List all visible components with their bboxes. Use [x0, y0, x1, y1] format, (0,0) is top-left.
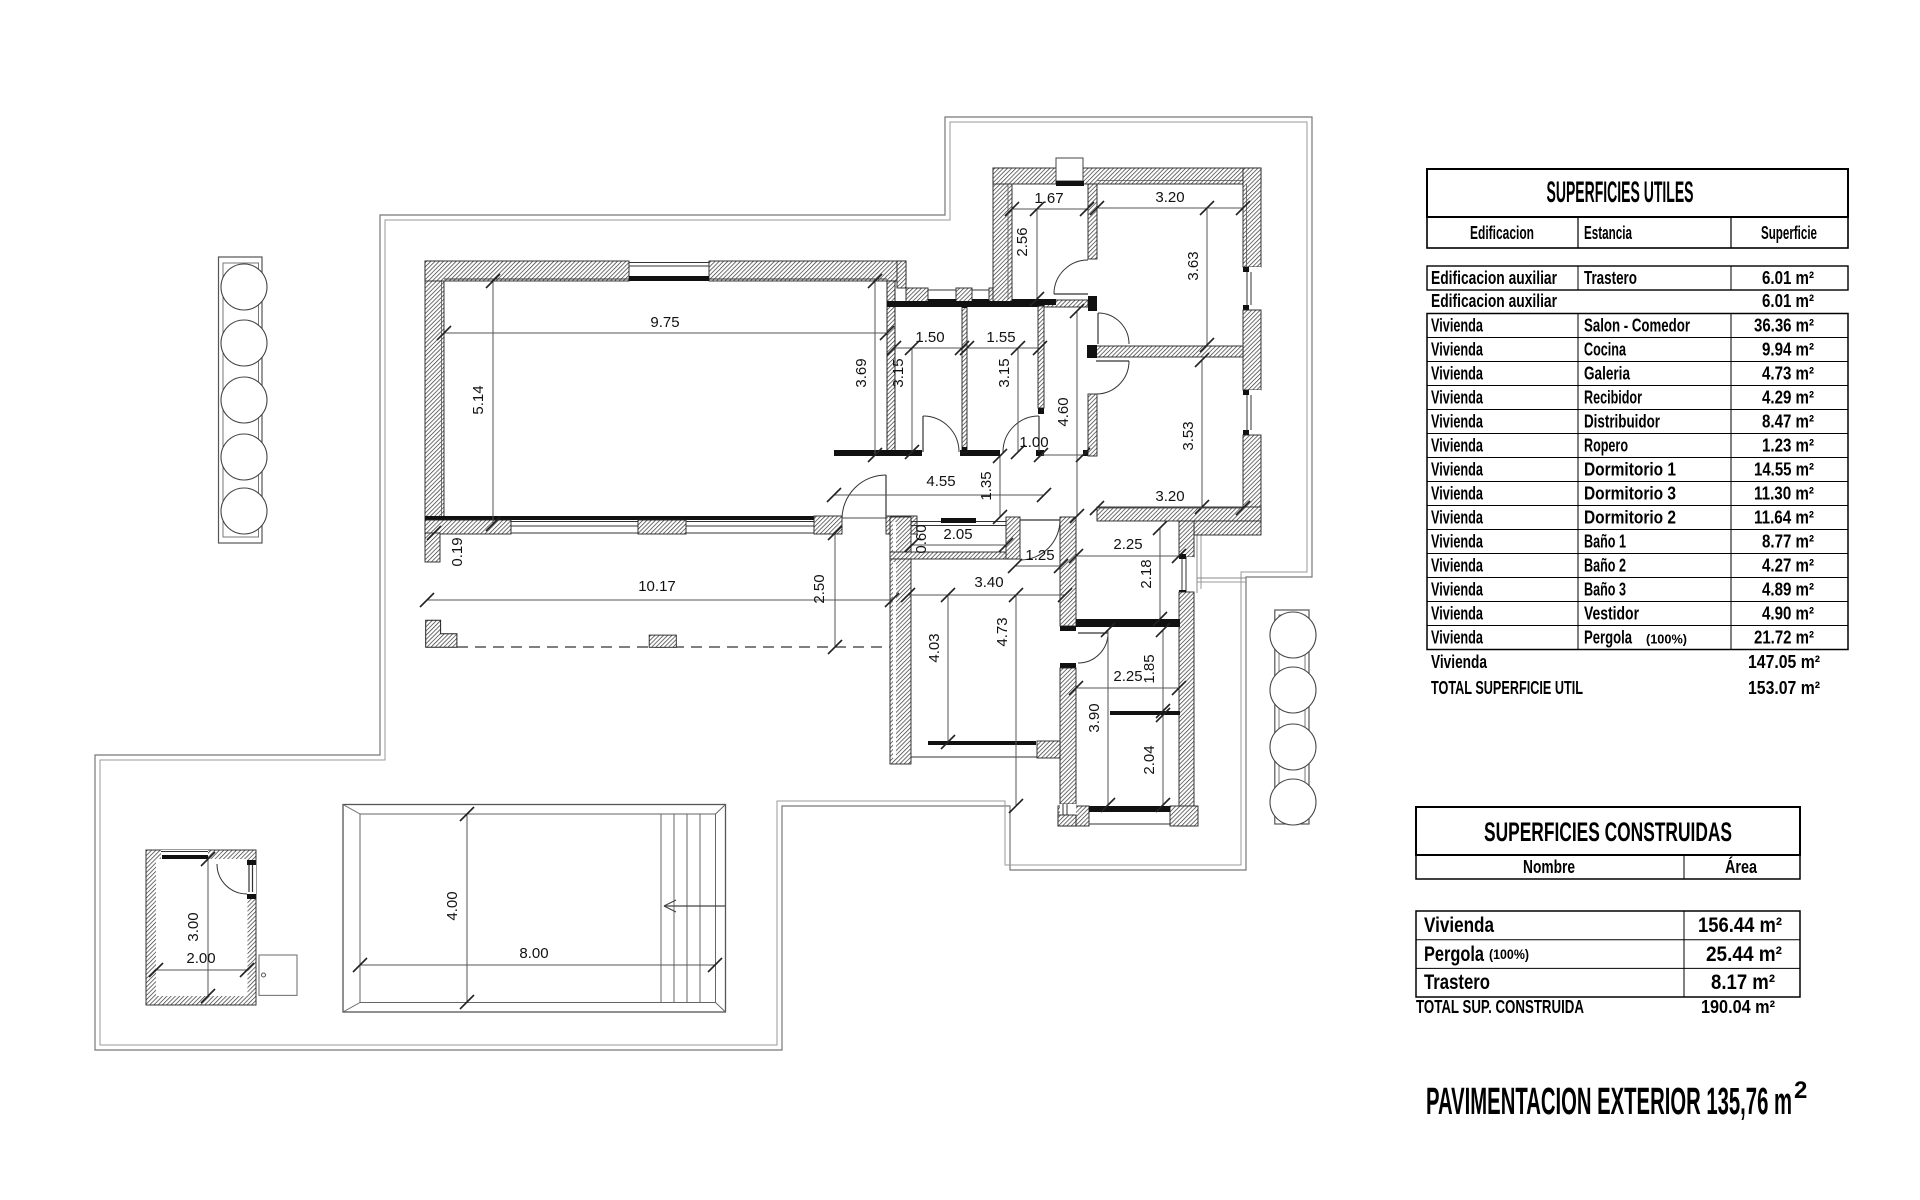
svg-text:Baño 2: Baño 2: [1584, 556, 1626, 576]
svg-text:11.30 m²: 11.30 m²: [1754, 484, 1814, 504]
svg-text:9.94 m²: 9.94 m²: [1762, 340, 1814, 360]
svg-text:25.44 m²: 25.44 m²: [1706, 943, 1782, 966]
svg-text:Estancia: Estancia: [1584, 223, 1633, 243]
svg-text:8.00: 8.00: [519, 945, 548, 962]
svg-text:3.20: 3.20: [1155, 488, 1184, 505]
svg-text:Distribuidor: Distribuidor: [1584, 412, 1660, 432]
svg-text:Vivienda: Vivienda: [1431, 532, 1484, 552]
svg-text:PAVIMENTACION EXTERIOR 135,76: PAVIMENTACION EXTERIOR 135,76 m: [1426, 1081, 1792, 1123]
svg-text:Dormitorio 3: Dormitorio 3: [1584, 484, 1676, 504]
svg-text:SUPERFICIES UTILES: SUPERFICIES UTILES: [1547, 176, 1694, 209]
svg-text:2.18: 2.18: [1138, 559, 1155, 588]
svg-text:1.85: 1.85: [1141, 654, 1158, 683]
svg-text:Vivienda: Vivienda: [1431, 388, 1484, 408]
svg-text:Vivienda: Vivienda: [1431, 460, 1484, 480]
svg-text:147.05 m²: 147.05 m²: [1748, 652, 1820, 672]
svg-text:2.25: 2.25: [1113, 536, 1142, 553]
svg-text:2.05: 2.05: [943, 526, 972, 543]
svg-text:4.27 m²: 4.27 m²: [1762, 556, 1814, 576]
svg-text:Edificacion auxiliar: Edificacion auxiliar: [1431, 268, 1557, 288]
svg-text:Vivienda: Vivienda: [1431, 556, 1484, 576]
svg-text:Área: Área: [1725, 856, 1758, 877]
svg-text:3.15: 3.15: [890, 358, 907, 387]
svg-text:14.55 m²: 14.55 m²: [1754, 460, 1814, 480]
svg-text:Vivienda: Vivienda: [1431, 652, 1488, 672]
svg-text:Edificacion: Edificacion: [1470, 223, 1534, 243]
svg-text:4.60: 4.60: [1055, 397, 1072, 426]
svg-text:0.19: 0.19: [449, 537, 466, 566]
svg-text:Vivienda: Vivienda: [1431, 604, 1484, 624]
svg-text:(100%): (100%): [1646, 632, 1687, 647]
svg-text:3.69: 3.69: [853, 358, 870, 387]
svg-text:4.73 m²: 4.73 m²: [1762, 364, 1814, 384]
svg-text:6.01 m²: 6.01 m²: [1762, 268, 1814, 288]
svg-text:Baño 3: Baño 3: [1584, 580, 1626, 600]
svg-text:4.89 m²: 4.89 m²: [1762, 580, 1814, 600]
svg-text:Vivienda: Vivienda: [1424, 914, 1494, 937]
svg-text:4.90 m²: 4.90 m²: [1762, 604, 1814, 624]
svg-text:Superficie: Superficie: [1761, 223, 1817, 243]
svg-text:4.55: 4.55: [926, 473, 955, 490]
svg-text:1.35: 1.35: [978, 471, 995, 500]
svg-text:3.15: 3.15: [996, 358, 1013, 387]
svg-text:Recibidor: Recibidor: [1584, 388, 1642, 408]
svg-text:3.40: 3.40: [974, 574, 1003, 591]
svg-text:10.17: 10.17: [638, 578, 676, 595]
svg-text:Dormitorio 2: Dormitorio 2: [1584, 508, 1676, 528]
svg-text:Dormitorio 1: Dormitorio 1: [1584, 460, 1676, 480]
svg-text:156.44 m²: 156.44 m²: [1698, 914, 1782, 937]
svg-text:Trastero: Trastero: [1584, 268, 1637, 288]
svg-text:3.63: 3.63: [1185, 251, 1202, 280]
svg-text:Vivienda: Vivienda: [1431, 508, 1484, 528]
svg-text:2.00: 2.00: [186, 950, 215, 967]
svg-text:0.60: 0.60: [913, 524, 930, 553]
svg-text:TOTAL SUP. CONSTRUIDA: TOTAL SUP. CONSTRUIDA: [1416, 997, 1584, 1017]
svg-text:Vivienda: Vivienda: [1431, 316, 1484, 336]
svg-text:Baño 1: Baño 1: [1584, 532, 1626, 552]
svg-text:Galeria: Galeria: [1584, 364, 1631, 384]
svg-text:Nombre: Nombre: [1523, 857, 1575, 877]
svg-text:1.67: 1.67: [1034, 190, 1063, 207]
svg-text:2.04: 2.04: [1141, 745, 1158, 774]
svg-text:5.14: 5.14: [470, 385, 487, 414]
svg-text:Pergola: Pergola: [1584, 628, 1633, 648]
svg-text:1.50: 1.50: [915, 329, 944, 346]
svg-text:2: 2: [1794, 1077, 1807, 1104]
svg-text:3.00: 3.00: [185, 912, 202, 941]
svg-text:1.25: 1.25: [1025, 547, 1054, 564]
svg-text:Vivienda: Vivienda: [1431, 628, 1484, 648]
svg-text:Trastero: Trastero: [1424, 971, 1490, 994]
svg-text:190.04 m²: 190.04 m²: [1701, 997, 1775, 1017]
svg-text:TOTAL SUPERFICIE UTIL: TOTAL SUPERFICIE UTIL: [1431, 678, 1583, 698]
svg-text:(100%): (100%): [1489, 946, 1529, 962]
svg-text:8.17 m²: 8.17 m²: [1711, 971, 1775, 994]
svg-text:Vivienda: Vivienda: [1431, 580, 1484, 600]
svg-text:Vivienda: Vivienda: [1431, 412, 1484, 432]
svg-text:6.01 m²: 6.01 m²: [1762, 291, 1814, 311]
svg-text:Vivienda: Vivienda: [1431, 364, 1484, 384]
svg-text:2.50: 2.50: [811, 574, 828, 603]
svg-text:2.56: 2.56: [1014, 227, 1031, 256]
svg-text:Ropero: Ropero: [1584, 436, 1628, 456]
svg-text:SUPERFICIES CONSTRUIDAS: SUPERFICIES CONSTRUIDAS: [1484, 817, 1732, 847]
svg-text:3.20: 3.20: [1155, 189, 1184, 206]
svg-text:Edificacion auxiliar: Edificacion auxiliar: [1431, 291, 1557, 311]
svg-text:8.77 m²: 8.77 m²: [1762, 532, 1814, 552]
svg-text:153.07 m²: 153.07 m²: [1748, 678, 1820, 698]
svg-text:Vivienda: Vivienda: [1431, 436, 1484, 456]
svg-text:Pergola: Pergola: [1424, 943, 1484, 966]
svg-text:Cocina: Cocina: [1584, 340, 1627, 360]
svg-text:21.72 m²: 21.72 m²: [1754, 628, 1814, 648]
svg-text:3.53: 3.53: [1180, 421, 1197, 450]
svg-text:Vivienda: Vivienda: [1431, 340, 1484, 360]
svg-text:4.29 m²: 4.29 m²: [1762, 388, 1814, 408]
svg-text:1.23 m²: 1.23 m²: [1762, 436, 1814, 456]
svg-text:2.25: 2.25: [1113, 668, 1142, 685]
svg-text:Vivienda: Vivienda: [1431, 484, 1484, 504]
svg-text:1.00: 1.00: [1019, 434, 1048, 451]
svg-text:Salon - Comedor: Salon - Comedor: [1584, 316, 1690, 336]
svg-text:9.75: 9.75: [650, 314, 679, 331]
svg-text:4.03: 4.03: [926, 633, 943, 662]
svg-text:36.36 m²: 36.36 m²: [1754, 316, 1814, 336]
svg-text:1.55: 1.55: [986, 329, 1015, 346]
svg-text:11.64 m²: 11.64 m²: [1754, 508, 1814, 528]
svg-text:4.00: 4.00: [444, 891, 461, 920]
svg-text:4.73: 4.73: [994, 617, 1011, 646]
svg-text:8.47 m²: 8.47 m²: [1762, 412, 1814, 432]
svg-text:3.90: 3.90: [1086, 703, 1103, 732]
svg-text:Vestidor: Vestidor: [1584, 604, 1639, 624]
